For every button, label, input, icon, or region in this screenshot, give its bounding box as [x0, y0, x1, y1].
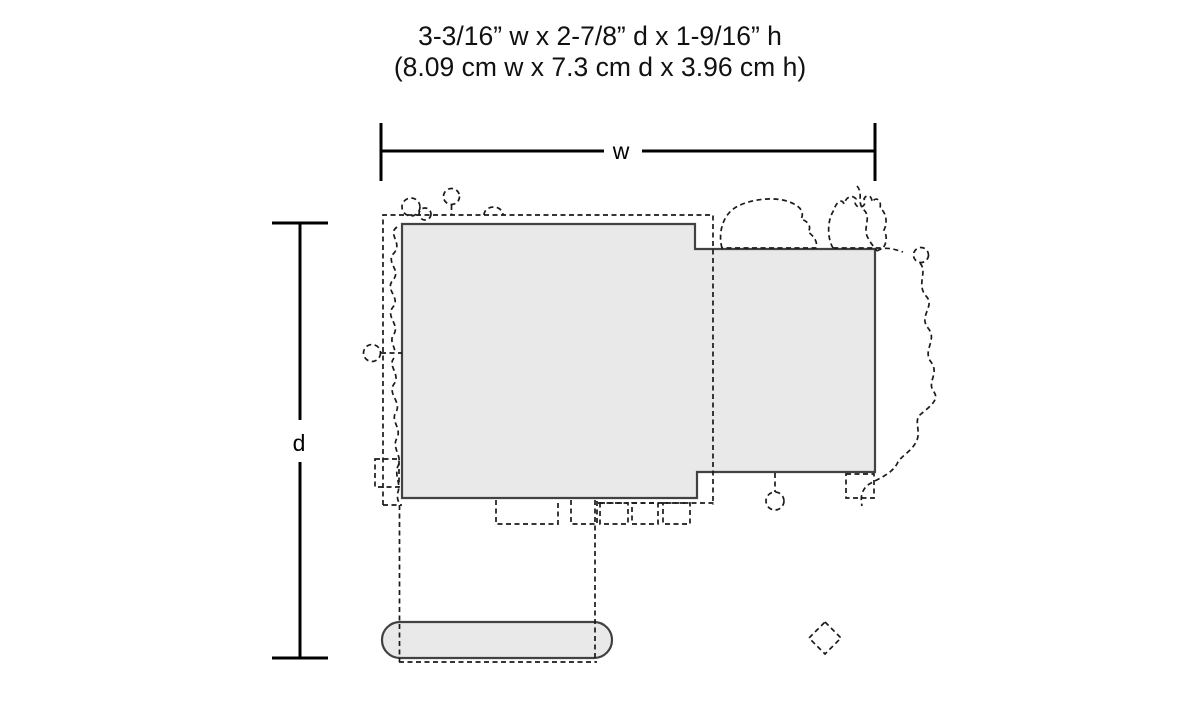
title-line-metric: (8.09 cm w x 7.3 cm d x 3.96 cm h) [394, 52, 806, 82]
step-rect-1 [600, 503, 628, 524]
right-step-rect [846, 474, 874, 498]
left-step-rect [375, 459, 399, 487]
bush-chain-left-lower [392, 358, 400, 506]
depth-label: d [293, 430, 306, 456]
bush-lobe-a [402, 198, 420, 216]
building-footprint [402, 224, 875, 498]
bush-chain-left-upper [390, 227, 397, 353]
title-block: 3-3/16” w x 2-7/8” d x 1-9/16” h (8.09 c… [394, 21, 806, 82]
width-dimension: w [381, 123, 875, 181]
lamp-circle-dashed [766, 492, 784, 510]
footprint-shapes [382, 224, 875, 658]
treeline-right-link [877, 248, 903, 252]
footprint-diagram: w d 3-3/16” w x 2-7/8” d x 1-9/16” h (8.… [0, 0, 1200, 709]
depth-dimension: d [272, 223, 328, 658]
diamond-marker [809, 622, 841, 654]
step-rect-2 [632, 503, 658, 524]
width-label: w [612, 138, 630, 164]
diagram-canvas: w d 3-3/16” w x 2-7/8” d x 1-9/16” h (8.… [0, 0, 1200, 709]
shrub-blob-right-2 [829, 196, 887, 248]
tree-circle-top [444, 189, 460, 205]
porch-rect-large [496, 500, 558, 524]
sidewalk-pad [382, 622, 612, 658]
treeline-loop [914, 248, 929, 263]
bush-hump-top [484, 207, 503, 215]
bush-circle-left [364, 345, 381, 362]
porch-rect-small [571, 500, 597, 524]
shrub-blob-right-1 [721, 199, 817, 248]
title-line-imperial: 3-3/16” w x 2-7/8” d x 1-9/16” h [418, 21, 782, 51]
bush-lobe-b [419, 208, 431, 220]
step-rect-3 [663, 503, 690, 524]
